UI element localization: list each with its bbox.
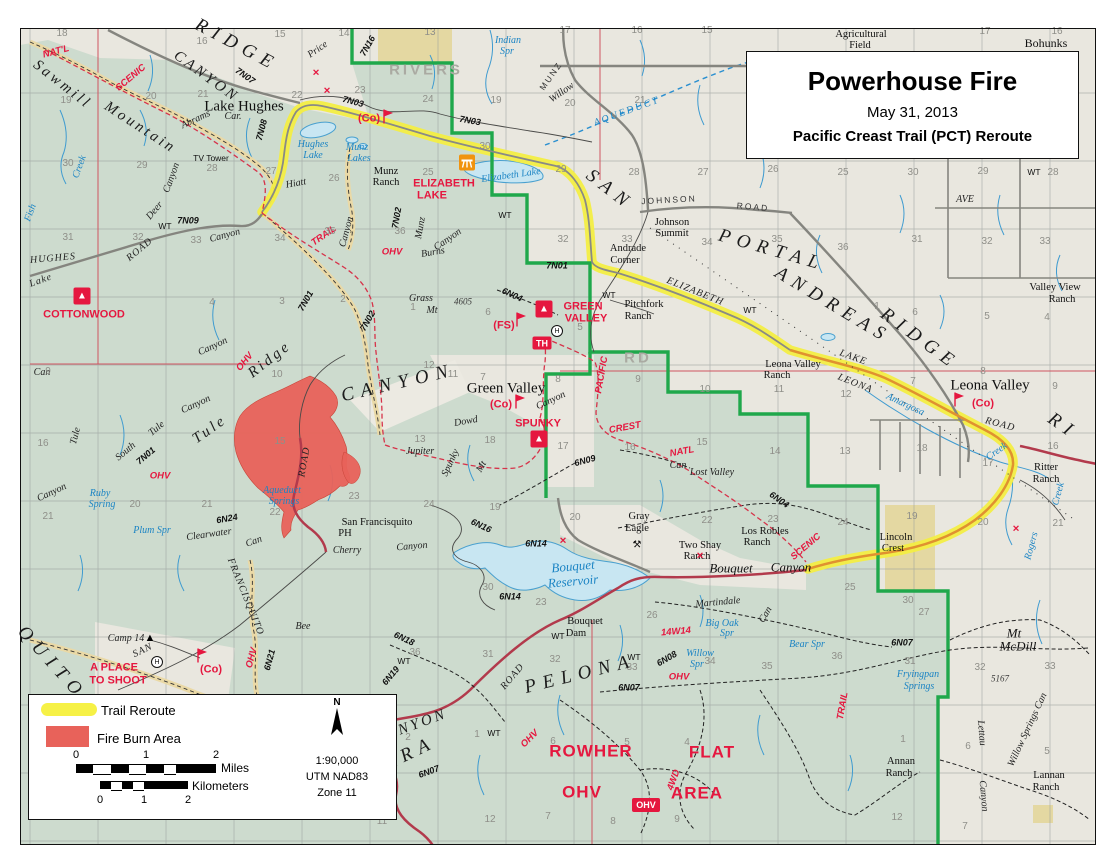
map-label: NAT'L: [42, 44, 70, 60]
heli-icon: H: [151, 656, 163, 668]
datum: UTM NAD83: [297, 771, 377, 783]
map-label: AREA: [671, 785, 723, 802]
section-number: 16: [1047, 442, 1058, 452]
miles-label: Miles: [221, 761, 249, 775]
section-number: 20: [129, 500, 140, 510]
map-label: ROWHER: [549, 743, 632, 760]
map-label: Green Valley: [467, 382, 545, 397]
km-scalebar: [100, 781, 188, 789]
map-label: 4605: [454, 298, 472, 307]
map-label: TV Tower: [193, 154, 229, 163]
km-label: Kilometers: [192, 779, 249, 793]
section-number: 3: [279, 297, 285, 307]
map-label: Ranch: [373, 178, 400, 189]
map-label: Canyon: [162, 162, 182, 195]
map-label: Martindale: [695, 596, 741, 610]
section-number: 19: [906, 512, 917, 522]
map-label: Andrade: [610, 244, 646, 255]
map-label: PH: [338, 529, 351, 540]
section-number: 32: [549, 655, 560, 665]
camp-icon: ▲: [74, 288, 91, 305]
section-number: 12: [423, 361, 434, 371]
map-label: 5167: [991, 675, 1009, 684]
section-number: 7: [962, 822, 968, 832]
th-icon: TH: [533, 337, 552, 350]
section-number: 15: [274, 437, 285, 447]
utm-zone: Zone 11: [297, 787, 377, 799]
section-number: 15: [696, 438, 707, 448]
section-number: 6: [550, 737, 556, 747]
section-number: 31: [482, 650, 493, 660]
section-number: 30: [902, 596, 913, 606]
map-label: OHV: [382, 247, 403, 257]
map-label: ELIZABETH: [665, 276, 725, 308]
section-number: 24: [422, 95, 433, 105]
section-number: 19: [60, 96, 71, 106]
section-number: 1: [410, 303, 416, 313]
map-label: Canyon: [771, 561, 811, 574]
section-number: 18: [56, 29, 67, 39]
section-number: 17: [982, 459, 993, 469]
map-label: Aqueduct: [263, 486, 301, 496]
section-number: 16: [37, 439, 48, 449]
section-number: 5: [1044, 747, 1050, 757]
map-label: OHV: [245, 647, 260, 669]
map-label: 7N07: [234, 66, 257, 86]
section-number: 30: [62, 159, 73, 169]
miles-tick-2: 2: [213, 749, 219, 761]
ohv-badge-icon: OHV: [632, 798, 660, 812]
map-label: 7N16: [359, 34, 378, 57]
map-label: Lettau: [975, 720, 987, 746]
section-number: 9: [674, 815, 680, 825]
map-label: CANYON: [339, 361, 456, 406]
section-number: 9: [45, 367, 51, 377]
section-number: 32: [981, 237, 992, 247]
miles-scalebar: [76, 764, 216, 773]
map-label: ROAD: [984, 416, 1016, 434]
map-label: Abrams: [180, 109, 212, 131]
section-number: 2: [340, 295, 346, 305]
trail-reroute-label: Trail Reroute: [101, 703, 176, 718]
km-tick-0: 0: [97, 794, 103, 806]
section-number: 10: [271, 370, 282, 380]
map-label: Ranch: [1033, 475, 1060, 486]
map-label: Los Robles: [741, 527, 789, 538]
map-label: Indian: [495, 36, 521, 46]
section-number: 14: [769, 447, 780, 457]
water-tank-label: WT: [602, 291, 615, 300]
section-number: 12: [840, 390, 851, 400]
section-number: 32: [974, 663, 985, 673]
map-label: ROAD: [297, 446, 312, 478]
map-label: Dam: [566, 629, 586, 640]
section-number: 7: [545, 812, 551, 822]
map-label: Gray: [629, 512, 650, 523]
map-label: Lake: [28, 272, 53, 289]
section-number: 11: [774, 385, 784, 395]
map-label: 6N04: [500, 286, 523, 303]
map-label: 6N04: [768, 490, 791, 510]
section-number: 11: [448, 370, 458, 380]
map-label: ROAD: [736, 201, 769, 212]
map-label: Annan: [887, 757, 915, 768]
section-number: 12: [484, 815, 495, 825]
section-number: 5: [984, 312, 990, 322]
map-label: 7N09: [177, 217, 199, 226]
section-number: 22: [701, 516, 712, 526]
map-label: Can: [670, 461, 687, 471]
map-label: RD: [624, 351, 652, 366]
map-label: Tule: [147, 420, 167, 439]
miles-tick-1: 1: [143, 749, 149, 761]
km-tick-2: 2: [185, 794, 191, 806]
map-label: Can: [758, 605, 775, 624]
section-number: 36: [394, 227, 405, 237]
map-label: Jupiter: [406, 447, 434, 457]
map-label: Canyon: [977, 780, 990, 812]
map-label: Tule: [190, 413, 230, 447]
section-number: 13: [414, 435, 425, 445]
map-label: Bohunks: [1025, 37, 1068, 49]
section-number: 13: [424, 28, 435, 38]
map-label: PORTAL: [716, 226, 827, 275]
map-label: Johnson: [655, 218, 689, 229]
map-label: Summit: [655, 229, 688, 240]
map-label: Leona Valley: [765, 360, 821, 371]
fire-burn-label: Fire Burn Area: [97, 731, 181, 746]
map-label: OHV: [669, 672, 690, 682]
map-label: Spr: [690, 660, 704, 670]
map-label: TRAIL: [836, 691, 850, 720]
map-label: OHV: [519, 728, 540, 749]
map-label: Munz: [414, 216, 428, 240]
section-number: 35: [324, 227, 335, 237]
section-number: 33: [1039, 237, 1050, 247]
section-number: 34: [704, 657, 715, 667]
section-number: 23: [354, 86, 365, 96]
map-label: ELIZABETH: [413, 179, 475, 190]
map-label: SCENIC: [789, 532, 823, 562]
section-number: 23: [348, 492, 359, 502]
map-label: 7N01: [546, 262, 568, 271]
map-label: AVE: [956, 195, 974, 205]
section-number: 28: [628, 168, 639, 178]
map-label: Bouquet: [709, 562, 752, 575]
section-number: 31: [904, 657, 915, 667]
map-label: (Co): [972, 399, 994, 410]
section-number: 17: [557, 442, 568, 452]
section-number: 13: [839, 447, 850, 457]
section-number: 23: [535, 598, 546, 608]
miles-tick-0: 0: [73, 749, 79, 761]
map-label: FLAT: [689, 744, 735, 761]
map-label: OHV: [562, 784, 602, 801]
map-label: Ranch: [625, 312, 652, 323]
water-tank-label: WT: [158, 222, 171, 231]
map-label: 6N07: [417, 764, 440, 780]
section-number: 10: [699, 385, 710, 395]
map-label: (Co): [358, 114, 380, 125]
map-label: LAKE: [417, 191, 447, 202]
section-number: 27: [918, 608, 929, 618]
section-number: 27: [697, 168, 708, 178]
map-label: Eagle: [625, 524, 649, 535]
map-label: COTTONWOOD: [43, 310, 125, 321]
section-number: 8: [555, 375, 561, 385]
map-label: QUITO: [14, 622, 90, 704]
map-label: Rogers: [1024, 531, 1041, 561]
section-number: 33: [626, 663, 637, 673]
section-number: 1: [874, 302, 880, 312]
gate-icon: ✕: [323, 86, 331, 97]
section-number: 19: [489, 503, 500, 513]
water-tank-label: WT: [1027, 168, 1040, 177]
flag-icon: [196, 648, 208, 669]
section-number: 33: [621, 235, 632, 245]
map-label: Pitchfork: [624, 300, 663, 311]
section-number: 18: [484, 436, 495, 446]
map-label: Ranch: [1049, 295, 1076, 306]
map-label: 6N16: [469, 517, 492, 534]
map-label: Cherry: [333, 546, 361, 556]
map-date: May 31, 2013: [867, 104, 958, 121]
map-label: Elizabeth Lake: [481, 167, 542, 185]
map-label: Spring: [89, 500, 116, 510]
section-number: 35: [771, 235, 782, 245]
section-number: 25: [837, 168, 848, 178]
north-arrow-icon: [330, 708, 344, 736]
section-number: 20: [145, 92, 156, 102]
map-label: 6N07: [891, 639, 913, 648]
map-label: Bouquet: [567, 617, 603, 628]
section-number: 24: [423, 500, 434, 510]
section-number: 21: [634, 96, 645, 106]
section-number: 4: [209, 298, 215, 308]
section-number: 31: [62, 233, 73, 243]
map-label: Mountain: [101, 99, 178, 156]
map-label: Deer: [145, 200, 166, 222]
map-label: 7N02: [359, 309, 378, 332]
section-number: 16: [1051, 27, 1062, 37]
section-number: 22: [269, 508, 280, 518]
map-label: Can: [244, 534, 263, 549]
map-label: Creek: [71, 154, 88, 180]
section-number: 4: [684, 738, 690, 748]
map-label: Munz: [374, 167, 399, 178]
map-label: JOHNSON: [641, 194, 697, 205]
map-label: Munz: [346, 143, 368, 153]
map-label: 6N21: [263, 648, 277, 671]
section-number: 19: [490, 96, 501, 106]
map-label: Agricultural: [835, 30, 886, 41]
map-label: San Francisquito: [342, 518, 413, 529]
map-label: 6N19: [381, 665, 402, 687]
heli-icon: H: [551, 325, 563, 337]
section-number: 30: [907, 168, 918, 178]
flag-icon: [515, 312, 527, 333]
section-number: 28: [206, 164, 217, 174]
section-number: 31: [911, 235, 922, 245]
section-number: 6: [912, 308, 918, 318]
section-number: 29: [977, 167, 988, 177]
map-label: Canyon: [180, 394, 212, 416]
water-tank-label: WT: [551, 632, 564, 641]
map-label: Spunky: [440, 448, 461, 478]
water-tank-label: WT: [487, 729, 500, 738]
map-label: Burns: [420, 246, 445, 260]
water-tank-label: WT: [397, 657, 410, 666]
section-number: 9: [1052, 382, 1058, 392]
map-label: Canyon: [36, 482, 68, 504]
map-label: Mt: [426, 306, 437, 316]
map-label: Lake: [303, 151, 322, 161]
map-label: Crest: [882, 544, 904, 555]
map-title: Powerhouse Fire: [808, 66, 1018, 97]
section-number: 32: [132, 233, 143, 243]
map-label: RIDGE: [877, 304, 963, 373]
section-number: 36: [409, 648, 420, 658]
camp-icon: ▲: [536, 301, 553, 318]
map-label: Dowd: [453, 415, 478, 429]
legend-box: Trail Reroute Fire Burn Area 0 1 2 Miles…: [28, 694, 397, 820]
map-label: Ranch: [764, 371, 791, 382]
section-number: 9: [635, 375, 641, 385]
section-number: 17: [979, 27, 990, 37]
section-number: 8: [610, 817, 616, 827]
map-label: Reservoir: [547, 572, 598, 589]
map-label: 14W14: [661, 626, 692, 638]
water-tank-label: WT: [627, 653, 640, 662]
map-label: CREST: [608, 421, 641, 436]
section-number: 7: [480, 373, 486, 383]
section-number: 33: [190, 236, 201, 246]
map-label: 7N03: [459, 115, 482, 128]
gate-icon: ✕: [312, 68, 320, 79]
map-label: Car.: [225, 112, 242, 122]
camp-icon: ▲: [531, 431, 548, 448]
map-label: PACIFIC: [594, 356, 610, 394]
gate-icon: ✕: [1012, 524, 1020, 535]
flag-icon: [514, 394, 526, 415]
map-subtitle: Pacific Creast Trail (PCT) Reroute: [793, 128, 1032, 145]
map-label: RIVERS: [389, 63, 463, 78]
map-label: LAKE: [838, 348, 868, 367]
map-label: 7N01: [297, 289, 316, 312]
map-label: Hiatt: [285, 177, 307, 190]
section-number: 21: [201, 500, 212, 510]
section-number: 30: [482, 583, 493, 593]
map-label: Fish: [23, 203, 38, 223]
map-label: 7N08: [255, 118, 269, 141]
map-label: Clearwater: [186, 527, 233, 543]
map-label: TO SHOOT: [89, 676, 146, 687]
section-number: 16: [631, 26, 642, 36]
map-label: Lincoln: [880, 533, 913, 544]
section-number: 34: [701, 238, 712, 248]
section-number: 5: [624, 738, 630, 748]
map-label: Ritter: [1034, 463, 1058, 474]
section-number: 15: [274, 30, 285, 40]
picnic-icon: [459, 155, 475, 176]
map-label: 6N18: [392, 630, 415, 647]
map-label: Ranch: [1033, 783, 1060, 794]
map-label: Spr: [720, 629, 734, 639]
section-number: 18: [916, 444, 927, 454]
map-label: Fryingpan: [897, 670, 939, 680]
map-label: OHV: [150, 471, 171, 481]
section-number: 29: [136, 161, 147, 171]
section-number: 34: [274, 234, 285, 244]
map-label: Canyon: [197, 336, 229, 358]
section-number: 23: [767, 515, 778, 525]
map-label: Tule: [69, 426, 83, 445]
water-tank-label: WT: [743, 306, 756, 315]
map-label: Lannan: [1033, 771, 1065, 782]
map-label: RI: [1044, 409, 1081, 443]
map-label: Hughes: [298, 140, 329, 150]
map-label: (Co): [490, 400, 512, 411]
section-number: 32: [557, 235, 568, 245]
section-number: 4: [1044, 313, 1050, 323]
map-label: Bear Spr: [789, 640, 825, 650]
section-number: 5: [577, 323, 583, 333]
section-number: 6: [965, 742, 971, 752]
map-label: Springs: [269, 497, 300, 507]
trail-reroute-swatch: [41, 703, 97, 716]
map-label: Price: [306, 40, 329, 61]
title-box: Powerhouse Fire May 31, 2013 Pacific Cre…: [746, 51, 1079, 159]
section-number: 7: [910, 377, 916, 387]
map-label: Canyon: [396, 541, 428, 554]
section-number: 21: [197, 90, 208, 100]
section-number: 20: [569, 513, 580, 523]
map-label: McDill: [1000, 640, 1037, 653]
section-number: 14: [338, 29, 349, 39]
map-label: Ranch: [744, 538, 771, 549]
map-label: Mt: [475, 460, 489, 475]
map-label: 6N08: [655, 650, 678, 669]
map-label: Field: [849, 41, 871, 52]
gate-icon: ✕: [559, 536, 567, 547]
map-label: VALLEY: [565, 314, 608, 325]
map-label: 6N09: [573, 454, 596, 468]
map-label: Bee: [296, 622, 311, 632]
section-number: 36: [831, 652, 842, 662]
section-number: 25: [844, 583, 855, 593]
map-label: Amargosa: [884, 392, 925, 418]
camp14-icon: ▲: [145, 632, 156, 644]
section-number: 20: [564, 99, 575, 109]
section-number: 25: [422, 168, 433, 178]
section-number: 26: [767, 165, 778, 175]
section-number: 16: [624, 443, 635, 453]
map-label: AQUEDUCT: [593, 95, 662, 128]
section-number: 24: [837, 518, 848, 528]
map-label: Ranch: [886, 769, 913, 780]
map-label: GREEN: [563, 302, 602, 313]
map-label: (FS): [493, 321, 514, 332]
section-number: 2: [405, 733, 411, 743]
map-label: Ruby: [90, 489, 111, 499]
section-number: 17: [559, 26, 570, 36]
map-label: Springs: [904, 682, 935, 692]
section-number: 8: [980, 367, 986, 377]
map-label: Valley View: [1029, 283, 1080, 294]
map-label: 6N24: [216, 513, 239, 526]
section-number: 12: [891, 813, 902, 823]
section-number: 29: [555, 165, 566, 175]
